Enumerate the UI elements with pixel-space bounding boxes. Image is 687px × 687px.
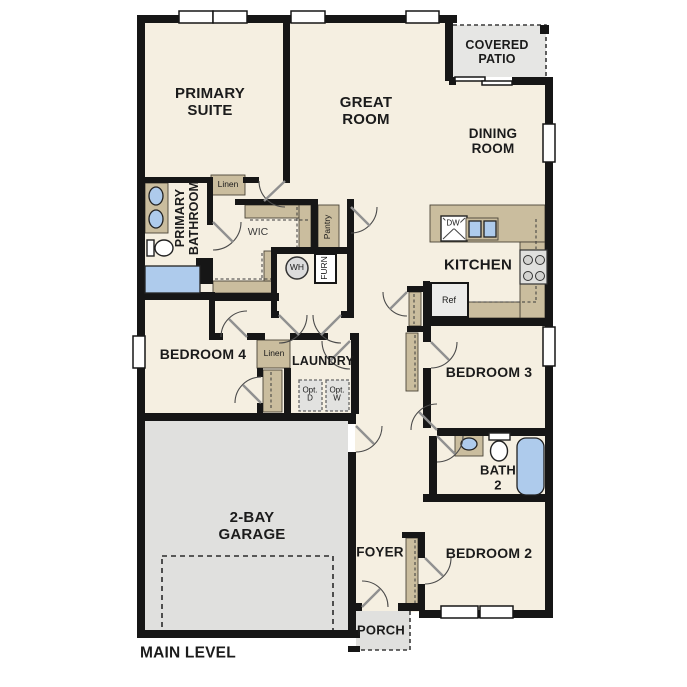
fixture-label-water-heater: WH xyxy=(290,263,304,273)
toilet-bowl xyxy=(155,240,173,256)
wall-segment xyxy=(271,311,279,318)
wall-segment xyxy=(540,25,549,34)
wall-segment xyxy=(209,293,279,301)
bathtub-bath2 xyxy=(517,438,544,495)
wall-segment xyxy=(257,403,263,414)
window xyxy=(406,11,439,23)
vanity-sink xyxy=(149,210,163,228)
wall-segment xyxy=(271,247,277,311)
room-label-dining-room: DINING ROOM xyxy=(469,126,517,156)
wall-segment xyxy=(257,368,263,377)
window xyxy=(543,327,555,366)
kitchen-counter-bottom xyxy=(467,302,520,318)
kitchen-sink-basin xyxy=(484,221,496,237)
hall-closet-shelf xyxy=(409,292,421,326)
wall-segment xyxy=(352,603,362,611)
room-label-bedroom-2: BEDROOM 2 xyxy=(446,546,533,562)
toilet2-tank xyxy=(489,433,510,440)
wall-segment xyxy=(311,199,318,254)
room-label-great-room: GREAT ROOM xyxy=(340,95,392,129)
wall-segment xyxy=(283,15,290,183)
wall-segment xyxy=(235,199,317,205)
fixture-label-pantry: Pantry xyxy=(323,215,333,240)
toilet-tank xyxy=(147,240,154,256)
wall-segment xyxy=(418,584,425,610)
wall-segment xyxy=(341,311,354,318)
window xyxy=(441,606,478,618)
room-label-laundry: LAUNDRY xyxy=(292,354,354,368)
wall-segment xyxy=(207,183,213,225)
room-label-covered-patio: COVERED PATIO xyxy=(465,38,528,66)
burner xyxy=(524,256,533,265)
bedroom2-closet-shelf xyxy=(406,538,418,607)
floor-plan: PRIMARY SUITE GREAT ROOM DINING ROOM COV… xyxy=(0,0,687,687)
sliding-door-panel xyxy=(455,77,485,81)
window xyxy=(480,606,513,618)
burner xyxy=(536,272,545,281)
room-label-bath-2: BATH 2 xyxy=(480,463,516,492)
fixture-label-refrigerator: Ref xyxy=(442,295,456,305)
wall-segment xyxy=(407,286,430,292)
fixture-label-dishwasher: DW xyxy=(445,220,460,229)
wall-segment xyxy=(137,630,360,638)
room-label-wic: WIC xyxy=(248,227,268,239)
toilet2-bowl xyxy=(491,441,508,461)
floor-right-wing xyxy=(449,81,547,612)
fixture-label-linen-hall: Linen xyxy=(218,180,239,190)
sliding-door-panel xyxy=(482,81,512,85)
fixture-label-opt-dryer: Opt. D xyxy=(302,387,317,404)
fixture-label-linen-bedroom4: Linen xyxy=(264,349,285,359)
window xyxy=(133,336,145,368)
room-label-primary-suite: PRIMARY SUITE xyxy=(175,86,245,120)
vanity-sink xyxy=(149,187,163,205)
burner xyxy=(536,256,545,265)
bedroom3-closet-shelf xyxy=(406,333,418,391)
wall-segment xyxy=(423,326,431,342)
wall-segment xyxy=(243,177,259,183)
window xyxy=(213,11,247,23)
wall-segment xyxy=(445,15,453,81)
plan-title: MAIN LEVEL xyxy=(140,644,236,661)
room-label-garage: 2-BAY GARAGE xyxy=(218,510,285,544)
window xyxy=(543,124,555,162)
wall-segment xyxy=(247,333,265,340)
wall-segment xyxy=(137,413,356,421)
fixture-label-opt-washer: Opt. W xyxy=(329,387,344,404)
burner xyxy=(524,272,533,281)
bathtub-primary xyxy=(145,266,200,293)
wall-segment xyxy=(429,436,437,494)
kitchen-sink-basin xyxy=(469,221,481,237)
room-label-porch: PORCH xyxy=(357,624,405,639)
bath2-sink xyxy=(461,438,477,450)
wall-segment xyxy=(423,318,553,326)
wall-segment xyxy=(348,646,360,652)
wall-segment xyxy=(418,532,425,558)
bedroom4-closet-shelf xyxy=(263,370,282,412)
wall-segment xyxy=(284,368,291,414)
wall-segment xyxy=(351,333,359,414)
room-label-bedroom-4: BEDROOM 4 xyxy=(160,347,247,363)
room-label-foyer: FOYER xyxy=(356,544,404,559)
wall-segment xyxy=(347,199,354,318)
wic-shelf-right xyxy=(299,205,311,250)
wic-shelf-bottom xyxy=(213,281,275,293)
room-label-bedroom-3: BEDROOM 3 xyxy=(446,365,533,381)
window xyxy=(291,11,325,23)
room-label-primary-bathroom: PRIMARY BATHROOM xyxy=(173,181,201,255)
wic-shelf-top xyxy=(245,205,300,218)
wall-segment xyxy=(137,15,145,638)
fixture-label-furnace: FURN xyxy=(320,256,330,280)
window xyxy=(179,11,213,23)
room-label-kitchen: KITCHEN xyxy=(444,258,512,275)
